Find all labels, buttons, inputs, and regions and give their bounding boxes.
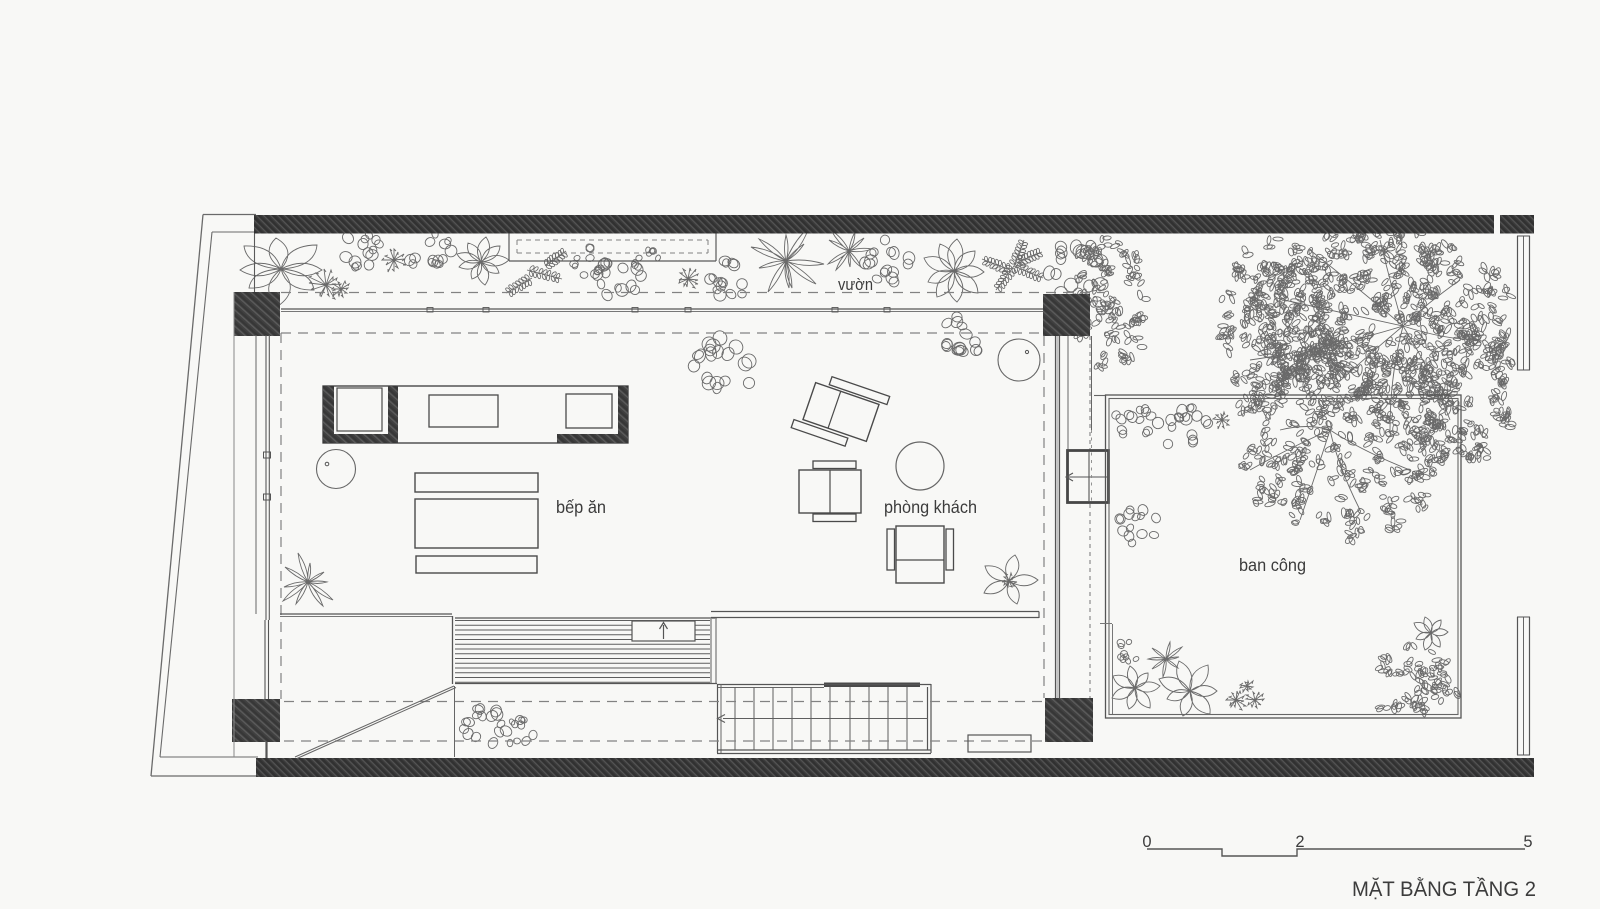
svg-text:phòng khách: phòng khách: [884, 497, 977, 517]
svg-text:vườn: vườn: [838, 276, 873, 294]
svg-text:bếp ăn: bếp ăn: [556, 497, 606, 517]
svg-text:ban công: ban công: [1239, 555, 1306, 575]
svg-text:MẶT BẰNG TẦNG 2: MẶT BẰNG TẦNG 2: [1352, 877, 1536, 901]
